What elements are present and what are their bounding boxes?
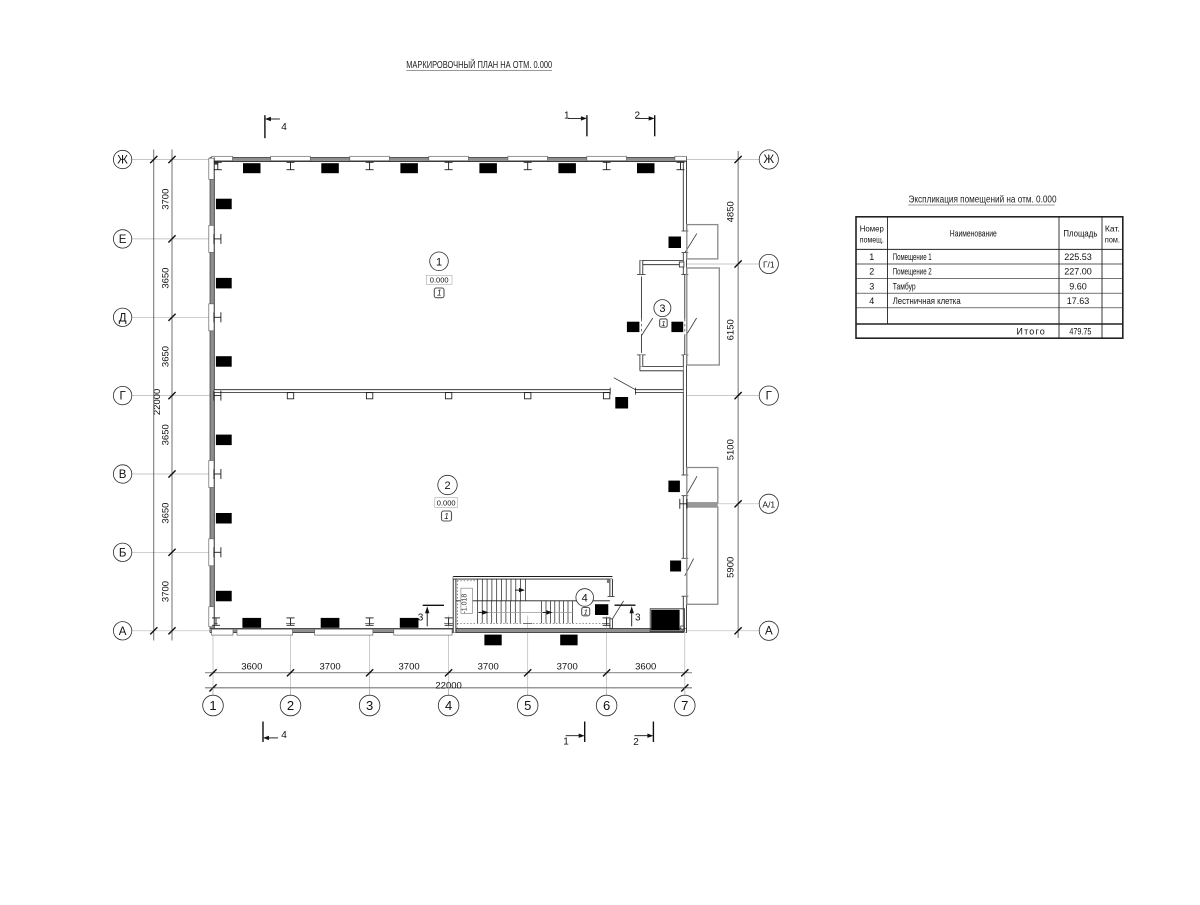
svg-text:3700: 3700 [161, 189, 172, 210]
svg-text:-1.018: -1.018 [462, 594, 469, 614]
svg-text:А: А [765, 626, 773, 638]
svg-text:пом.: пом. [1105, 235, 1120, 245]
svg-text:МАРКИРОВОЧНЫЙ ПЛАН НА ОТМ. 0.0: МАРКИРОВОЧНЫЙ ПЛАН НА ОТМ. 0.000 [406, 58, 552, 71]
svg-text:5100: 5100 [725, 439, 736, 460]
svg-text:Тамбур: Тамбур [893, 281, 916, 291]
svg-text:1: 1 [869, 252, 874, 262]
svg-text:17.63: 17.63 [1067, 296, 1090, 306]
svg-text:3650: 3650 [161, 424, 172, 445]
svg-text:Д: Д [119, 312, 127, 324]
svg-text:0.000: 0.000 [430, 276, 449, 285]
svg-text:В: В [119, 469, 127, 481]
svg-text:2: 2 [287, 698, 294, 713]
svg-text:Е: Е [119, 234, 127, 246]
svg-text:3650: 3650 [161, 503, 172, 524]
svg-text:4: 4 [281, 122, 287, 133]
svg-text:А: А [119, 626, 127, 638]
svg-text:Наименование: Наименование [950, 229, 997, 239]
svg-text:Помещение 2: Помещение 2 [893, 267, 932, 277]
svg-text:Г: Г [119, 391, 126, 403]
svg-text:Помещение 1: Помещение 1 [893, 252, 932, 262]
svg-text:А/1: А/1 [762, 500, 775, 510]
svg-text:2: 2 [869, 267, 874, 277]
svg-text:1: 1 [209, 698, 216, 713]
svg-text:7: 7 [681, 698, 688, 713]
svg-text:Ж: Ж [117, 155, 128, 167]
svg-text:3600: 3600 [241, 662, 262, 673]
svg-text:1: 1 [444, 512, 448, 521]
svg-text:2: 2 [633, 737, 639, 748]
svg-text:6150: 6150 [725, 319, 736, 340]
svg-text:3: 3 [869, 281, 874, 291]
svg-text:Кат.: Кат. [1105, 224, 1120, 234]
svg-text:0.000: 0.000 [437, 498, 456, 507]
svg-text:3: 3 [659, 303, 665, 315]
svg-text:1: 1 [584, 607, 588, 616]
svg-text:225.53: 225.53 [1064, 252, 1092, 262]
svg-text:9.60: 9.60 [1069, 281, 1087, 291]
svg-text:4: 4 [582, 593, 588, 605]
svg-text:1: 1 [436, 256, 442, 268]
svg-text:479.75: 479.75 [1069, 326, 1091, 336]
svg-text:Г/1: Г/1 [763, 260, 775, 270]
svg-text:помещ.: помещ. [860, 235, 884, 245]
svg-text:1: 1 [437, 289, 441, 298]
svg-text:Площадь: Площадь [1063, 229, 1097, 239]
svg-text:Итого: Итого [1016, 326, 1046, 336]
svg-text:Б: Б [119, 547, 127, 559]
svg-text:3700: 3700 [478, 662, 499, 673]
svg-text:3700: 3700 [161, 581, 172, 602]
svg-text:3650: 3650 [161, 268, 172, 289]
svg-text:1: 1 [564, 111, 570, 122]
svg-text:3: 3 [366, 698, 373, 713]
svg-text:Г: Г [766, 390, 773, 402]
svg-text:2: 2 [635, 111, 641, 122]
svg-text:4: 4 [869, 296, 874, 306]
svg-text:3700: 3700 [320, 662, 341, 673]
svg-text:1: 1 [661, 319, 665, 328]
svg-text:Экспликация помещений на отм.: Экспликация помещений на отм. 0.000 [909, 194, 1057, 205]
svg-text:3: 3 [418, 613, 424, 624]
svg-text:3650: 3650 [161, 346, 172, 367]
svg-text:5: 5 [524, 698, 531, 713]
svg-text:3700: 3700 [399, 662, 420, 673]
svg-text:5900: 5900 [725, 557, 736, 578]
svg-text:4: 4 [445, 698, 452, 713]
svg-text:2: 2 [444, 480, 450, 492]
svg-text:Ж: Ж [763, 154, 774, 166]
svg-text:6: 6 [603, 698, 610, 713]
svg-text:227.00: 227.00 [1064, 267, 1092, 277]
svg-text:3: 3 [635, 613, 641, 624]
svg-text:3600: 3600 [635, 662, 656, 673]
svg-text:1: 1 [563, 737, 569, 748]
svg-text:4: 4 [281, 730, 287, 741]
svg-text:4850: 4850 [725, 201, 736, 222]
svg-text:Лестничная клетка: Лестничная клетка [893, 296, 961, 306]
svg-text:3700: 3700 [557, 662, 578, 673]
svg-text:22000: 22000 [152, 389, 163, 415]
svg-text:Номер: Номер [860, 224, 884, 234]
